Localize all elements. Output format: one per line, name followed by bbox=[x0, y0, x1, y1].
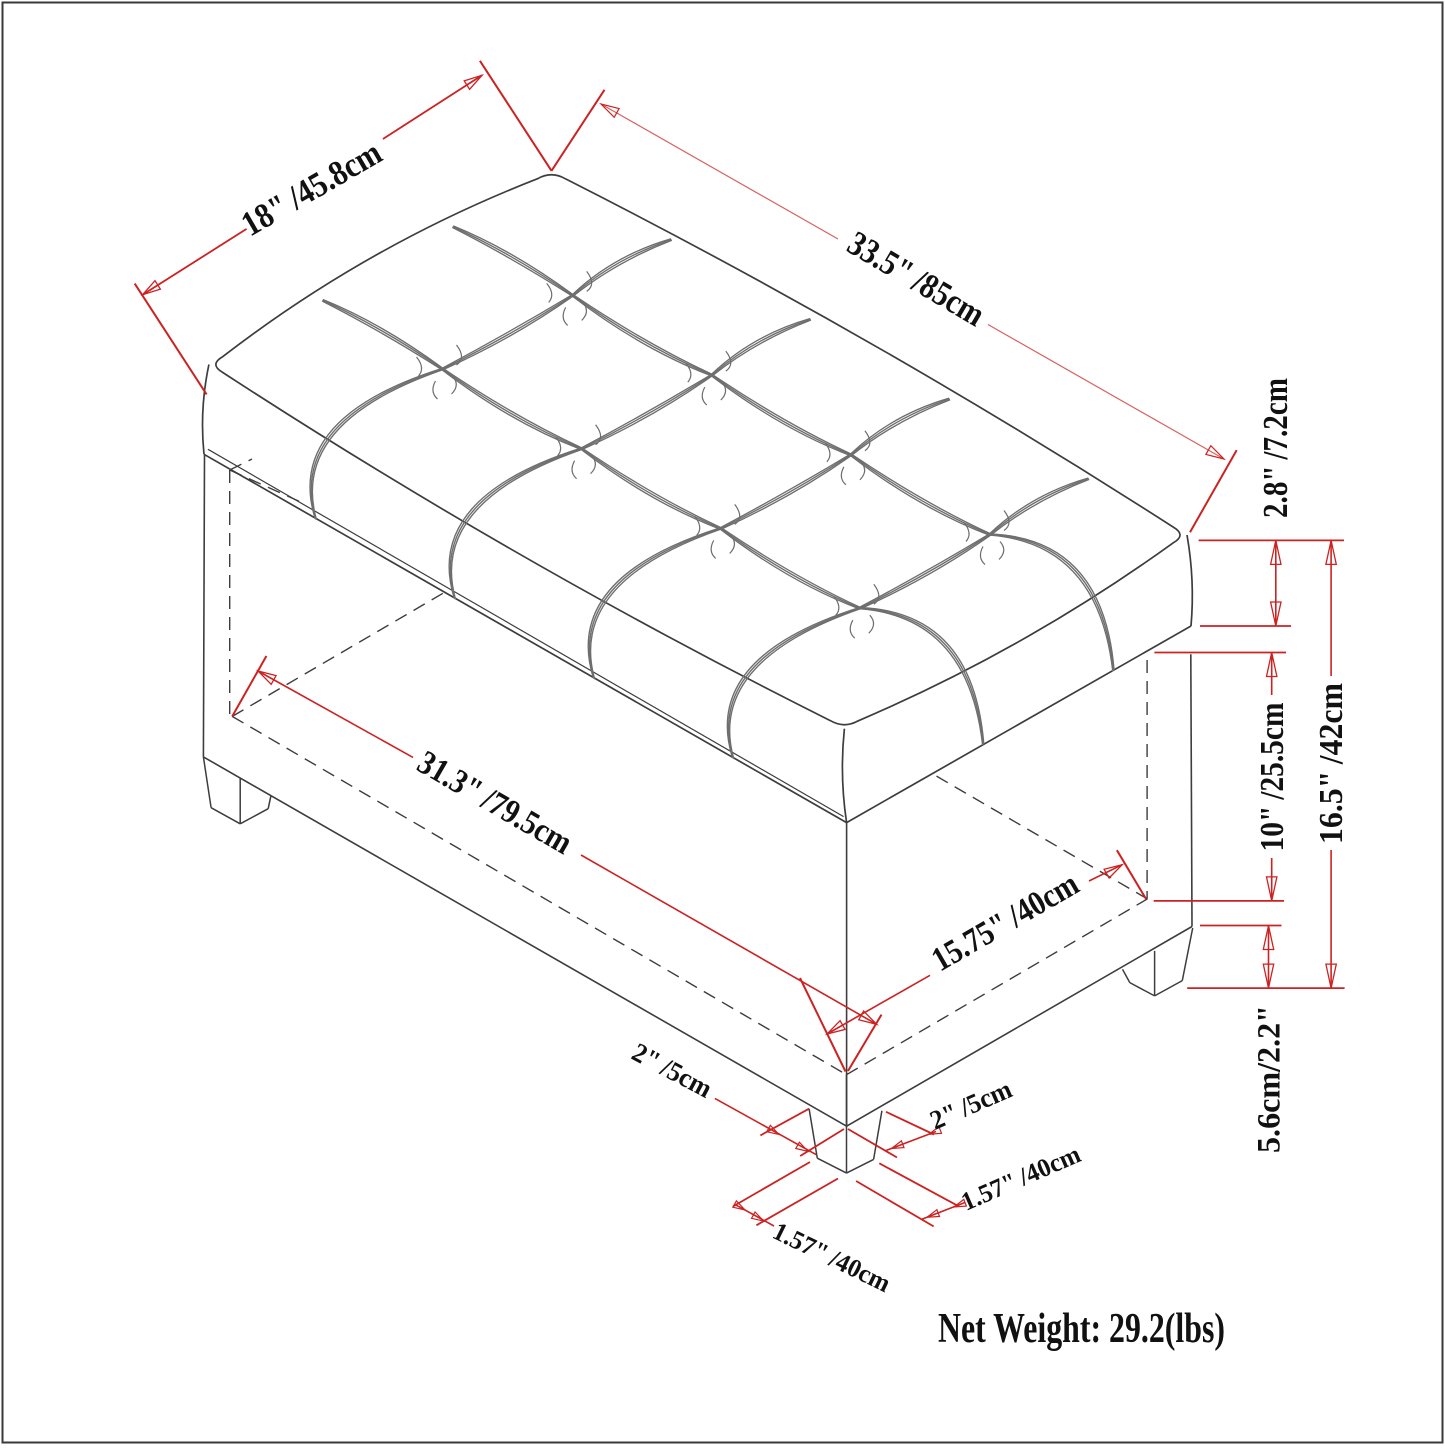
svg-text:10" /25.5cm: 10" /25.5cm bbox=[1254, 703, 1291, 852]
svg-text:2.8" /7.2cm: 2.8" /7.2cm bbox=[1256, 378, 1295, 518]
svg-text:Net Weight: 29.2(lbs): Net Weight: 29.2(lbs) bbox=[938, 1306, 1225, 1352]
svg-text:16.5" /42cm: 16.5" /42cm bbox=[1313, 683, 1350, 844]
svg-text:5.6cm/2.2": 5.6cm/2.2" bbox=[1252, 1005, 1288, 1153]
